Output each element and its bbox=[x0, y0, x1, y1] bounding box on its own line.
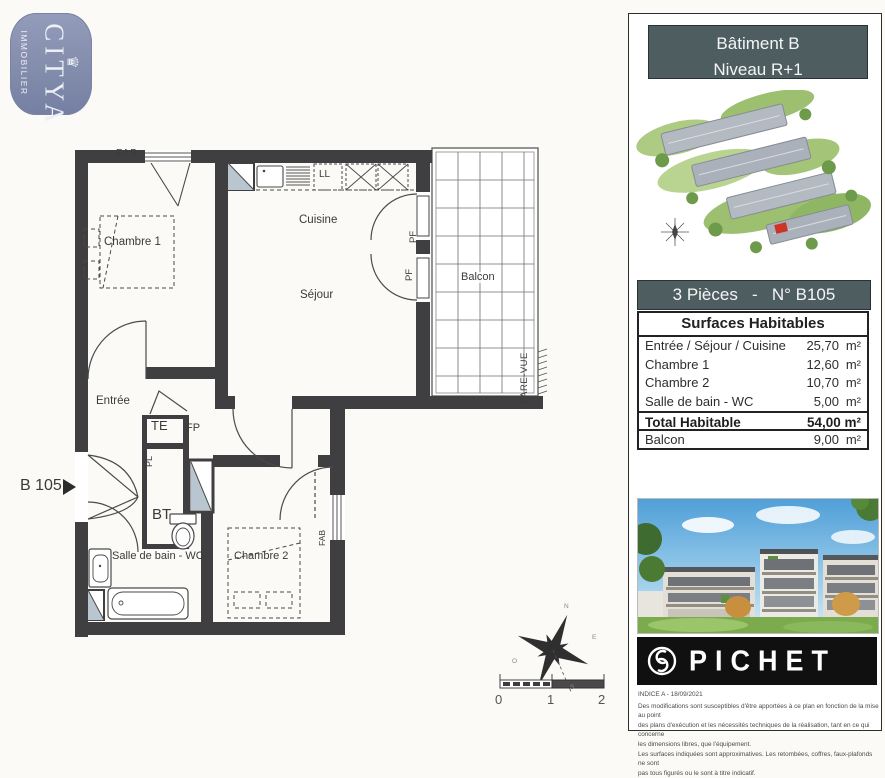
disclaimer-text: INDICE A - 18/09/2021 Des modifications … bbox=[638, 690, 880, 778]
disclaimer-line: pas tous figurés ou le sont à titre indi… bbox=[638, 769, 880, 778]
room-label-balcon: Balcon bbox=[459, 272, 497, 283]
compass-o: O bbox=[512, 658, 517, 665]
room-label-chambre1: Chambre 1 bbox=[104, 237, 161, 249]
surfaces-table: Surfaces Habitables Entrée / Séjour / Cu… bbox=[637, 311, 869, 435]
disclaimer-line: les dimensions libres, que l'équipement. bbox=[638, 740, 880, 750]
building-header: Bâtiment B Niveau R+1 bbox=[648, 25, 868, 79]
balcon-unit: m² bbox=[839, 431, 861, 448]
label-fp: FP bbox=[186, 423, 200, 434]
bed-chambre2 bbox=[228, 528, 300, 618]
surface-label: Entrée / Séjour / Cuisine bbox=[645, 337, 795, 356]
scale-tick-0: 0 bbox=[495, 692, 502, 707]
room-label-cuisine: Cuisine bbox=[299, 215, 337, 227]
citya-brand-text: CITYA bbox=[39, 16, 70, 136]
unit-title-bar: 3 Pièces - N° B105 bbox=[637, 280, 871, 310]
surface-row: Entrée / Séjour / Cuisine 25,70 m² bbox=[639, 337, 867, 356]
windows bbox=[75, 150, 430, 540]
floorplan-drawing bbox=[55, 140, 615, 730]
crown-icon: ♛ bbox=[64, 55, 82, 68]
bed-chambre1 bbox=[84, 216, 174, 288]
surface-unit: m² bbox=[839, 393, 861, 412]
compass-s: S bbox=[570, 684, 574, 691]
unit-number-label: B 105 bbox=[20, 478, 62, 494]
balcon-row: Balcon 9,00 m² bbox=[639, 431, 867, 448]
label-te: TE bbox=[151, 419, 168, 432]
citya-subtitle-text: IMMOBILIER bbox=[19, 13, 29, 113]
pichet-wordmark: PICHET bbox=[689, 645, 836, 678]
surface-unit: m² bbox=[839, 374, 861, 393]
surface-value: 10,70 bbox=[795, 374, 839, 393]
surface-label: Chambre 1 bbox=[645, 356, 795, 375]
appliance-label-ll: LL bbox=[319, 170, 330, 180]
pichet-logo-bar: PICHET bbox=[637, 637, 877, 685]
surface-label: Salle de bain - WC bbox=[645, 393, 795, 412]
balcon-label: Balcon bbox=[645, 431, 795, 448]
disclaimer-indice: INDICE A - 18/09/2021 bbox=[638, 690, 880, 700]
disclaimer-line: Des modifications sont susceptibles d'êt… bbox=[638, 702, 880, 721]
building-level: Niveau R+1 bbox=[649, 57, 867, 83]
surface-value: 5,00 bbox=[795, 393, 839, 412]
pare-vue-hatching bbox=[538, 349, 547, 394]
floorplan-sheet: { "logo": { "brand": "CITYA", "sub": "IM… bbox=[0, 0, 885, 732]
building-photo bbox=[637, 498, 879, 634]
citya-logo: CITYA IMMOBILIER ♛ bbox=[10, 13, 92, 115]
room-label-chambre2: Chambre 2 bbox=[234, 551, 288, 562]
window-label-fab-right: FAB bbox=[318, 530, 327, 546]
balcon-row-box: Balcon 9,00 m² bbox=[637, 429, 869, 450]
surface-value: 25,70 bbox=[795, 337, 839, 356]
bt-duct bbox=[189, 460, 213, 512]
door-label-pf1: PF bbox=[409, 231, 419, 243]
disclaimer-line: Les surfaces indiquées sont approximativ… bbox=[638, 750, 880, 769]
surface-row: Salle de bain - WC 5,00 m² bbox=[639, 393, 867, 412]
site-plan-illustration bbox=[635, 90, 880, 272]
label-pare-vue: PARE-VUE bbox=[520, 352, 530, 404]
disclaimer-line: des plans d'exécution et les nécessités … bbox=[638, 721, 880, 740]
label-pl: PL bbox=[145, 456, 154, 467]
pichet-logo-icon bbox=[645, 644, 679, 678]
surface-value: 12,60 bbox=[795, 356, 839, 375]
surfaces-table-header: Surfaces Habitables bbox=[639, 313, 867, 337]
label-bt: BT bbox=[152, 507, 171, 522]
surface-row: Chambre 2 10,70 m² bbox=[639, 374, 867, 393]
unit-arrow-icon bbox=[63, 479, 76, 495]
surface-unit: m² bbox=[839, 356, 861, 375]
surface-unit: m² bbox=[839, 337, 861, 356]
room-label-sejour: Séjour bbox=[300, 290, 333, 302]
scale-tick-1: 1 bbox=[547, 692, 554, 707]
scale-bar bbox=[500, 674, 604, 688]
balcon-value: 9,00 bbox=[795, 431, 839, 448]
window-label-fab-top: FAB bbox=[116, 149, 138, 159]
surface-row: Chambre 1 12,60 m² bbox=[639, 356, 867, 375]
room-label-sdb: Salle de bain - WC bbox=[112, 551, 204, 562]
room-label-entree: Entrée bbox=[96, 396, 130, 408]
building-name: Bâtiment B bbox=[649, 31, 867, 57]
surface-label: Chambre 2 bbox=[645, 374, 795, 393]
door-label-pf2: PF bbox=[405, 269, 415, 281]
compass-e: E bbox=[592, 634, 596, 641]
compass-n: N bbox=[564, 603, 569, 610]
scale-tick-2: 2 bbox=[598, 692, 605, 707]
